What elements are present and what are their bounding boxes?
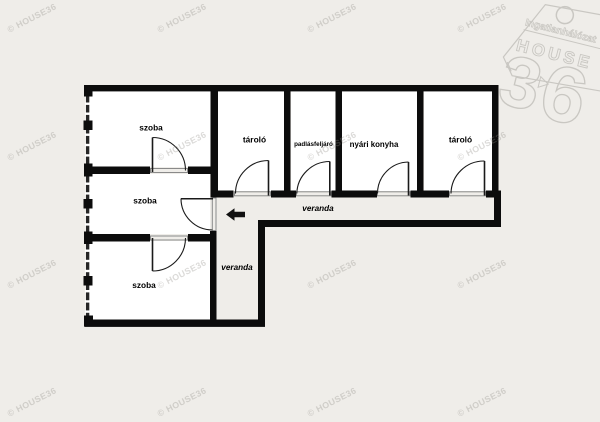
svg-text:tároló: tároló (449, 135, 472, 145)
svg-text:veranda: veranda (221, 263, 253, 272)
svg-text:tároló: tároló (243, 135, 266, 145)
svg-text:szoba: szoba (139, 123, 163, 133)
svg-text:szoba: szoba (132, 280, 156, 290)
svg-text:nyári konyha: nyári konyha (350, 140, 399, 149)
svg-text:veranda: veranda (302, 204, 334, 213)
svg-text:szoba: szoba (133, 196, 157, 206)
